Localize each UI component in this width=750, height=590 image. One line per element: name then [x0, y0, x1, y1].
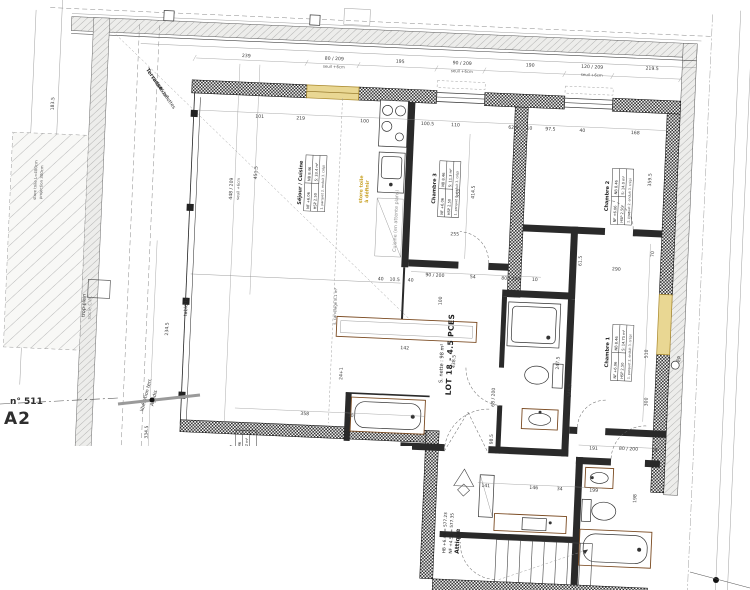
annotation-label: Cuisine (en attente plans)	[392, 190, 401, 253]
dimension-label: seuil +6cm	[235, 178, 241, 200]
dimension-label: 10.5	[389, 277, 400, 283]
dimension-label: 183.5	[50, 97, 57, 110]
dimension-label: 414.5	[470, 185, 477, 198]
store-dashed-box	[565, 86, 613, 95]
room-table-chambre2: Chambre 2 NF +6.06 NB 8.46 HSP 2.50 S: 1…	[603, 168, 633, 225]
dimension-label: 34	[557, 486, 563, 492]
dimension-label: 100.5	[421, 121, 434, 128]
dimension-label: 19	[651, 447, 657, 453]
survey-dot	[713, 577, 719, 583]
svg-text:S: 11.3 m²: S: 11.3 m²	[448, 168, 453, 187]
annotation-label: tablette	[183, 297, 190, 316]
sheet-number: n° 511	[10, 397, 43, 407]
dimension-label: 68 / 200	[490, 388, 497, 407]
dimension-label: 97.5	[545, 126, 556, 132]
dimension-label: 168	[631, 130, 640, 136]
dimension-label: 334.5	[144, 425, 151, 438]
dimension-label: seuil +6cm	[323, 64, 345, 70]
toilet	[591, 502, 616, 521]
toilet	[524, 366, 549, 385]
room-name: Séjour / Cuisine	[296, 160, 305, 205]
room-name: Chambre 1	[604, 336, 611, 367]
store-dashed-box	[437, 81, 485, 90]
svg-text:NB 8.46: NB 8.46	[614, 335, 619, 350]
dimension-label: 40	[408, 277, 414, 283]
attique-block: Attique NF +4.58 = 577.35 HB +6.45 = 577…	[441, 483, 470, 554]
dimension-label: 80 / 209	[325, 56, 344, 63]
svg-text:HSP 2.50: HSP 2.50	[313, 192, 318, 209]
dimension-label: 219	[296, 115, 305, 121]
dimension-label: 40	[378, 276, 384, 282]
dimension-label: 80 / 200	[619, 446, 638, 453]
dimension-label: 10	[348, 413, 354, 419]
floor-plan-drawing: 23980 / 209seuil +6cm19590 / 209seuil +6…	[0, 0, 750, 590]
dimension-label: 239	[242, 53, 251, 59]
annotation-label: libération terr.	[138, 377, 153, 412]
dimension-label: 90 / 200	[425, 272, 444, 279]
dimension-label: 255	[450, 231, 459, 237]
dimension-label: 62.5	[508, 125, 519, 131]
dimension-label: 191	[589, 445, 598, 451]
dimension-label: 290	[612, 266, 621, 272]
ep-box-icon	[310, 15, 320, 25]
svg-text:NF +6.06: NF +6.06	[613, 205, 618, 223]
dimension-label: 101	[255, 114, 264, 120]
dimension-label: 146	[529, 485, 538, 491]
dimension-label: 247.5	[555, 356, 562, 369]
room-name: Chambre 2	[604, 180, 611, 211]
dimension-label: 90 / 209	[453, 60, 472, 67]
dimension-label: 100	[438, 296, 444, 305]
dimension-label: 358	[300, 411, 309, 417]
dimension-label: 70	[650, 251, 656, 257]
dimension-label: 80 / 200	[501, 275, 520, 282]
svg-text:NF +6.06: NF +6.06	[440, 197, 445, 215]
svg-text:NB 8.46: NB 8.46	[307, 166, 312, 181]
dimension-label: 61.5	[577, 256, 583, 267]
survey-dot	[150, 398, 155, 403]
glazed-facade	[177, 93, 200, 424]
room-name: Chambre 3	[431, 173, 438, 204]
dimension-label: 100	[360, 118, 369, 124]
dimension-label: 451.5	[253, 166, 260, 179]
ep-box-icon	[164, 11, 174, 21]
dimension-label: 141	[481, 483, 490, 489]
room-table-chambre3: Chambre 3 NF +6.06 NB 8.46 HSP 2.50 S: 1…	[430, 160, 460, 217]
svg-text:HSP 2.50: HSP 2.50	[620, 362, 625, 379]
toilet-tank	[581, 499, 591, 521]
dimension-label: seuil +6cm	[581, 72, 603, 78]
dimension-label: 448 / 209	[228, 177, 235, 199]
dimension-label: 300	[643, 397, 649, 406]
dimension-label: 190	[526, 62, 535, 68]
attique-label: Attique	[454, 529, 462, 554]
dimension-label: 40	[579, 128, 585, 134]
bathroom-2	[578, 467, 654, 568]
dimension-label: 219.5	[645, 66, 658, 73]
annotation-label: socle CVC	[87, 295, 94, 320]
annotation-label: trop-plein	[81, 294, 88, 317]
dimension-label: 348.5	[567, 384, 574, 397]
svg-text:S: 14.0 m²: S: 14.0 m²	[621, 175, 626, 194]
dimension-label: 510	[644, 349, 650, 358]
sheet-code: A2	[4, 409, 31, 429]
dimension-label: 359.5	[647, 173, 654, 186]
dimension-label: 195	[396, 59, 405, 65]
triangle-symbol	[454, 469, 475, 487]
dimension-label: 24+1	[338, 367, 345, 380]
svg-text:S: 33.4 m²: S: 33.4 m²	[314, 162, 319, 181]
annotation-label: store toile	[358, 175, 365, 204]
svg-text:NB 8.46: NB 8.46	[441, 172, 446, 187]
dimension-label: 120 / 209	[581, 64, 603, 71]
svg-text:HB +6.45 = 577.23: HB +6.45 = 577.23	[441, 512, 448, 554]
dimension-label: 98.5	[489, 434, 495, 445]
dimension-label: 10	[526, 125, 532, 131]
dimension-label: 199	[589, 488, 598, 494]
dimension-label: 234.5	[164, 322, 171, 335]
dimension-label: 142	[400, 345, 409, 351]
dimension-label: seuil +6cm	[451, 68, 473, 74]
dimension-label: 10	[532, 277, 538, 283]
annotation-label: sol: dallettes	[154, 82, 177, 111]
svg-text:NF +6.06: NF +6.06	[306, 191, 311, 209]
highlighted-window	[657, 294, 673, 355]
svg-text:HSP 2.50: HSP 2.50	[447, 198, 452, 215]
svg-text:NF +6.06: NF +6.06	[613, 361, 618, 379]
roof-hatch-area	[3, 132, 88, 350]
dimension-label: 198	[632, 494, 638, 503]
white-crop-area	[0, 446, 412, 590]
chimney-box	[344, 8, 371, 25]
room-table-sejour: Séjour / Cuisine NF +6.06 NB 8.46 HSP 2.…	[296, 155, 327, 212]
svg-text:NB 8.46: NB 8.46	[614, 179, 619, 194]
dimension-label: 54	[470, 274, 476, 280]
room-table-chambre1: Chambre 1 NF +6.06 NB 8.46 HSP 2.50 S: 1…	[604, 324, 634, 381]
svg-text:HSP 2.50: HSP 2.50	[620, 206, 625, 223]
svg-text:S: 14.75 m²: S: 14.75 m²	[621, 329, 626, 351]
floor-plan-sheet: 23980 / 209seuil +6cm19590 / 209seuil +6…	[0, 0, 750, 590]
dimension-label: 110	[451, 122, 460, 128]
